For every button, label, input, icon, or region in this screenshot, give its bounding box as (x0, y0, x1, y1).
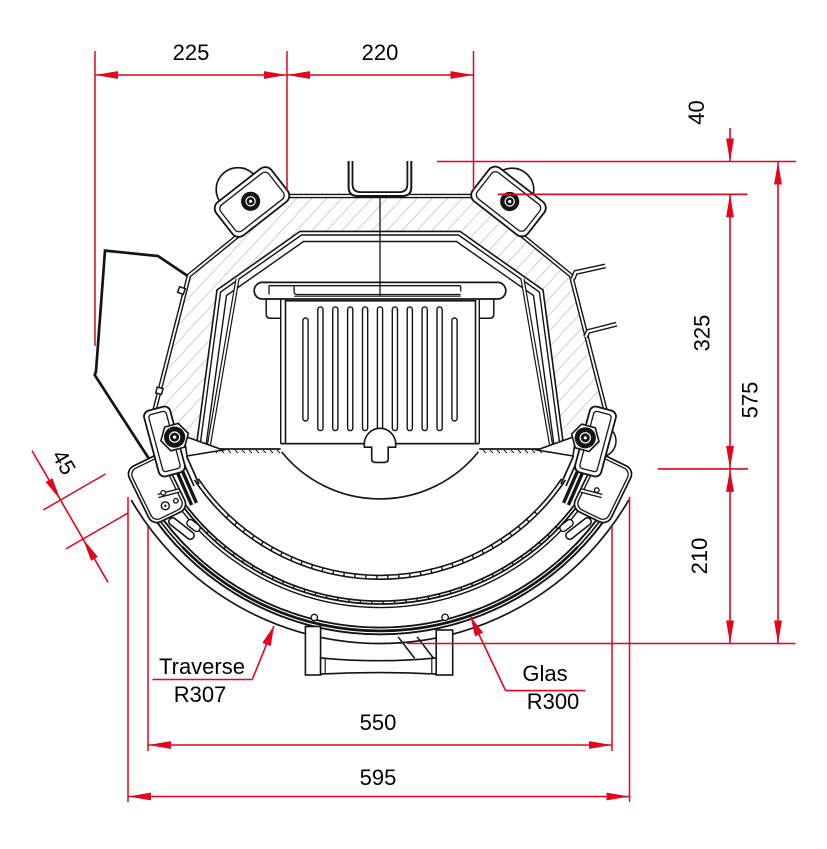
svg-text:595: 595 (360, 765, 397, 790)
svg-text:R300: R300 (527, 689, 580, 714)
svg-text:40: 40 (684, 100, 709, 124)
svg-text:220: 220 (362, 40, 399, 65)
svg-text:Glas: Glas (522, 661, 567, 686)
svg-text:575: 575 (738, 382, 763, 419)
svg-text:Traverse: Traverse (159, 654, 245, 679)
svg-text:325: 325 (690, 315, 715, 352)
svg-text:225: 225 (173, 40, 210, 65)
svg-text:R307: R307 (174, 682, 227, 707)
svg-text:550: 550 (360, 710, 397, 735)
svg-text:210: 210 (687, 538, 712, 575)
